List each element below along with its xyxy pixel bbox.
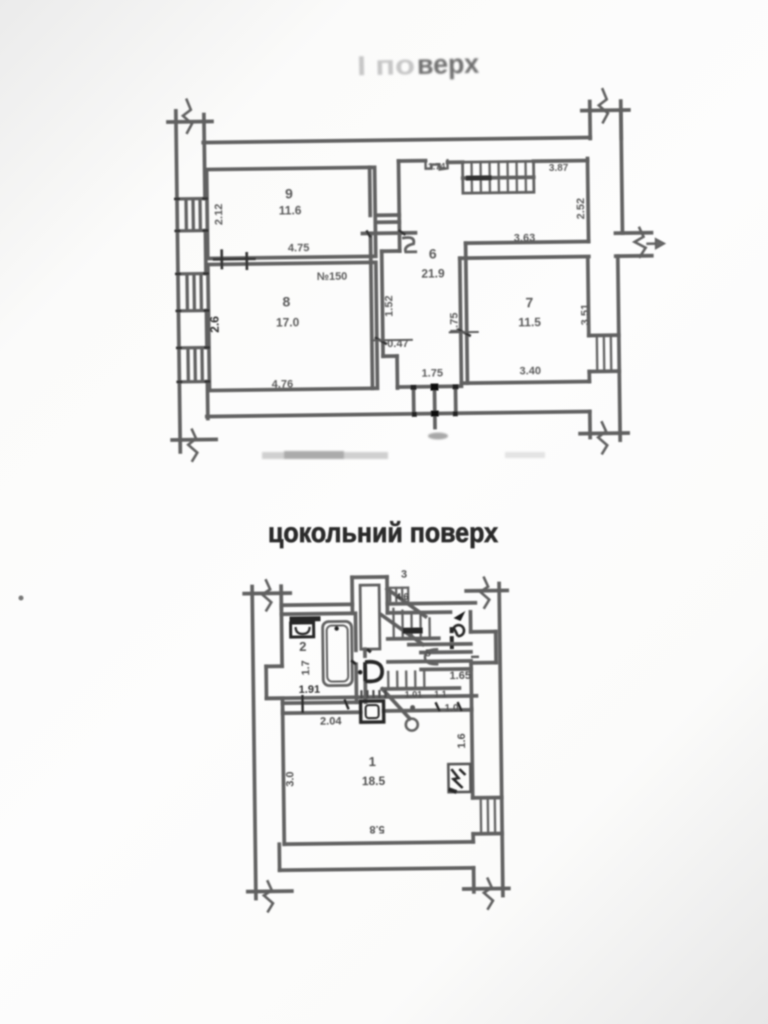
svg-text:3.87: 3.87 (549, 163, 569, 174)
svg-text:1.0: 1.0 (445, 703, 459, 714)
svg-text:І по: І по (357, 49, 416, 81)
svg-text:2.04: 2.04 (320, 715, 342, 727)
svg-text:1.75: 1.75 (448, 313, 460, 335)
svg-text:8: 8 (282, 293, 290, 309)
svg-text:11.6: 11.6 (279, 203, 302, 217)
svg-text:6: 6 (429, 246, 437, 262)
svg-text:7: 7 (525, 294, 533, 310)
svg-text:2.12: 2.12 (213, 204, 225, 226)
svg-text:5.8: 5.8 (369, 823, 384, 835)
svg-text:9: 9 (285, 185, 293, 201)
svg-text:5: 5 (425, 648, 431, 659)
svg-text:2.52: 2.52 (575, 198, 587, 220)
svg-text:верх: верх (417, 48, 480, 80)
svg-text:1.52: 1.52 (383, 295, 395, 317)
svg-text:3.51: 3.51 (579, 304, 591, 326)
svg-text:1.01: 1.01 (405, 689, 423, 699)
svg-text:17.0: 17.0 (276, 315, 300, 329)
svg-text:4.75: 4.75 (288, 242, 310, 254)
svg-text:1.1: 1.1 (434, 689, 447, 699)
svg-text:3: 3 (401, 569, 407, 581)
svg-text:3.0: 3.0 (284, 771, 296, 786)
svg-text:2: 2 (299, 639, 306, 654)
svg-text:11.5: 11.5 (518, 315, 541, 329)
svg-text:3.40: 3.40 (519, 365, 541, 377)
svg-text:№150: №150 (317, 271, 348, 283)
svg-text:4.6: 4.6 (396, 592, 409, 602)
svg-text:1.7: 1.7 (300, 660, 312, 675)
svg-text:1: 1 (369, 754, 376, 769)
svg-text:18.5: 18.5 (362, 774, 386, 788)
svg-text:0.47: 0.47 (387, 338, 409, 350)
svg-text:21.9: 21.9 (421, 266, 445, 280)
svg-text:1.74: 1.74 (428, 161, 446, 171)
svg-text:цокольний поверх: цокольний поверх (268, 517, 498, 548)
svg-text:1.65: 1.65 (449, 670, 471, 682)
svg-text:1.91: 1.91 (299, 684, 321, 696)
svg-text:2.6: 2.6 (208, 316, 222, 333)
svg-text:3.63: 3.63 (514, 232, 536, 244)
svg-text:4.76: 4.76 (272, 378, 294, 390)
svg-text:1.75: 1.75 (422, 367, 444, 379)
svg-text:1.6: 1.6 (456, 733, 468, 748)
